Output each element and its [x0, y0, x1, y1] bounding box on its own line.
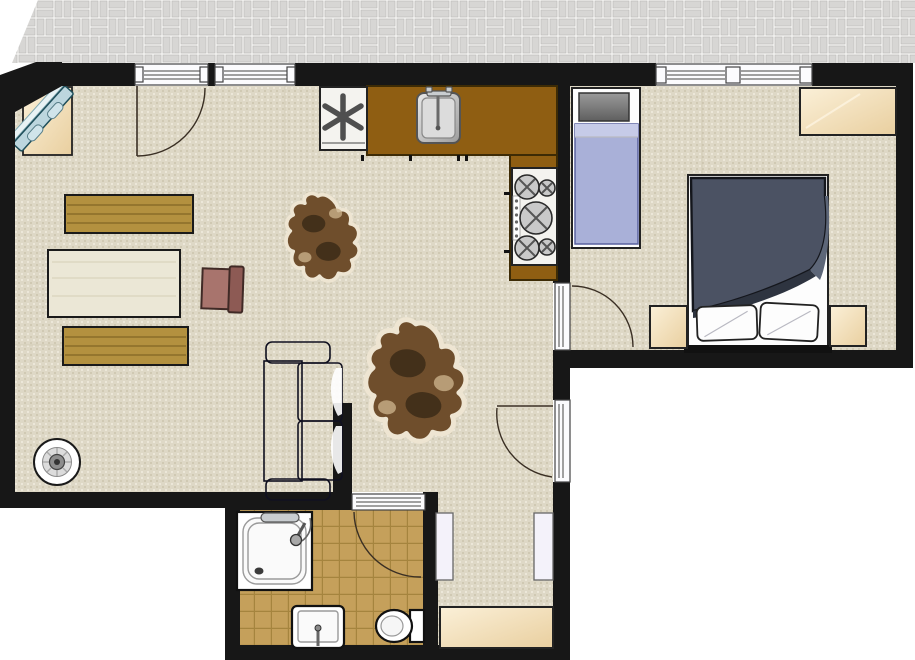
stove [512, 168, 557, 265]
asterisk-appliance [320, 87, 367, 150]
terrace-paving [12, 0, 915, 63]
headboard [684, 345, 832, 353]
round-stool [34, 439, 80, 485]
door-panel-right [534, 513, 553, 580]
counter-top [367, 86, 557, 155]
living-window [215, 64, 295, 85]
bench-top [65, 195, 193, 233]
toilet [376, 610, 424, 642]
wardrobe [800, 88, 896, 135]
hall-cabinet [440, 607, 553, 648]
side-chair [201, 265, 244, 312]
single-bed [572, 88, 640, 248]
nightstand-right [830, 306, 866, 346]
floor-plan-drawing: Apartment floor plan [0, 0, 915, 660]
bedroom-window [656, 64, 812, 85]
coffee-table [48, 250, 180, 317]
door-panel-left [436, 513, 453, 580]
pillow [579, 93, 629, 121]
floor-plan-page: Apartment floor plan [0, 0, 915, 660]
kitchen-sink [417, 87, 460, 143]
nightstand-left [650, 306, 687, 348]
burners [515, 175, 555, 260]
drain [255, 568, 264, 575]
shower [237, 512, 312, 590]
bench-bottom [63, 327, 188, 365]
double-bed [684, 175, 832, 353]
washbasin [292, 606, 344, 648]
